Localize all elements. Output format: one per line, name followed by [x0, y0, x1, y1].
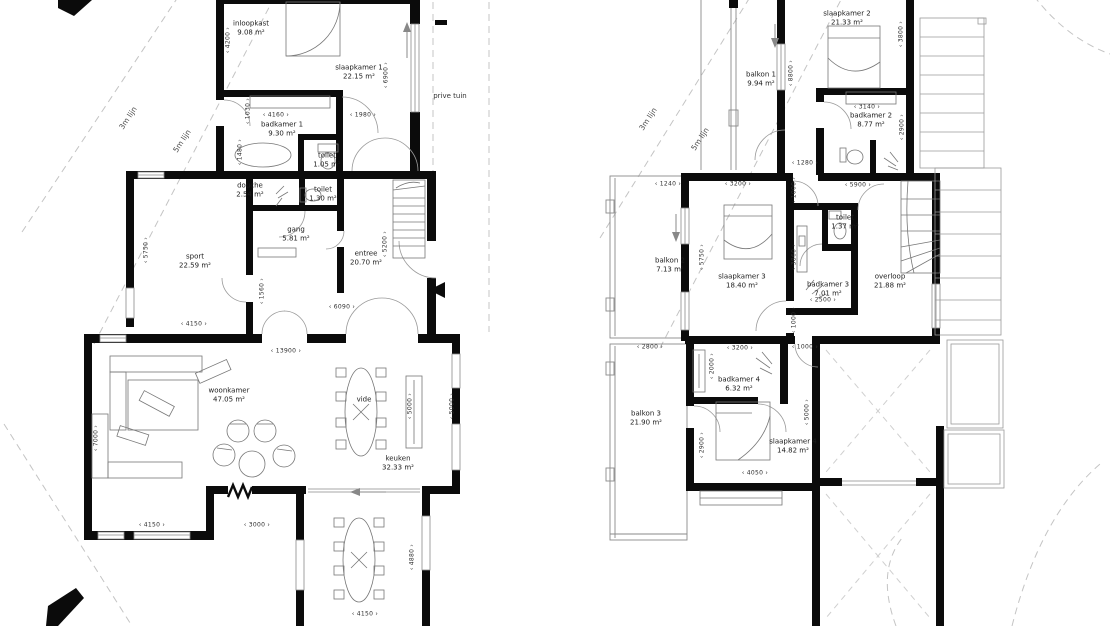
floorplan-sheet: inloopkast9.08 m²slaapkamer 122.15 m²bad… [0, 0, 1110, 626]
ground-floor-plan [84, 0, 460, 626]
first-floor-walls [681, 0, 944, 626]
floorplan-drawing [0, 0, 1110, 626]
ground-floor-arrows [350, 22, 445, 496]
balconies [606, 0, 738, 540]
ground-floor-doors [222, 97, 436, 334]
staircase [393, 180, 425, 258]
first-floor-furniture [693, 26, 898, 505]
fireplace [228, 485, 252, 497]
first-floor-plan [606, 0, 1004, 626]
